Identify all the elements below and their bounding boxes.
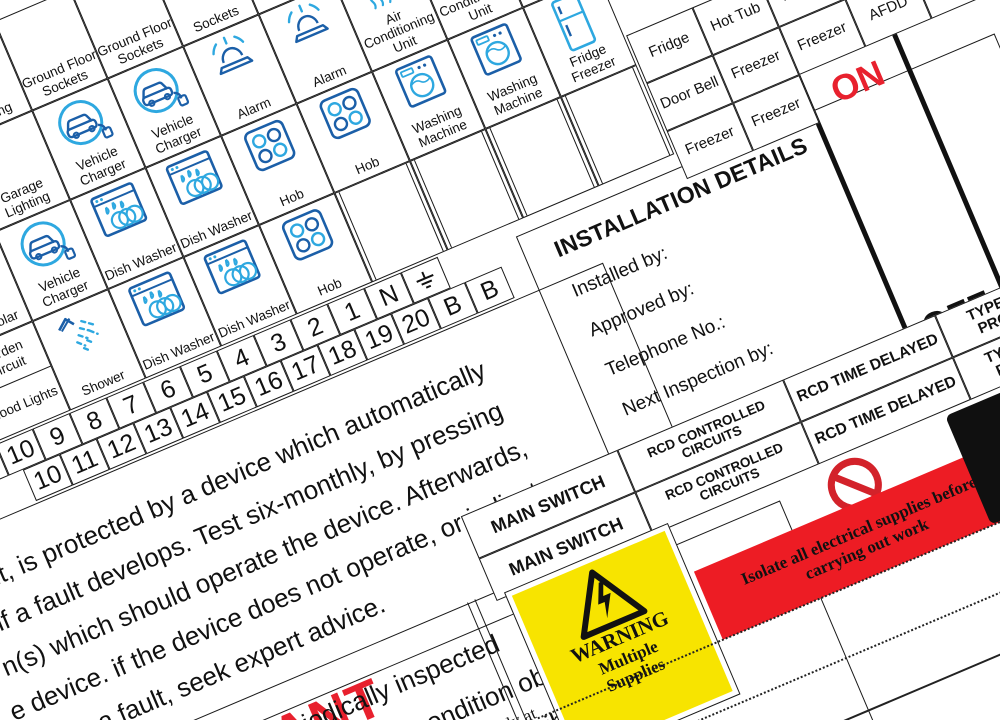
consumer-unit-label-sheet: it, is protected by a device which autom… (0, 0, 1000, 720)
label-sheet-photo: it, is protected by a device which autom… (0, 0, 1000, 720)
siren-icon (261, 0, 350, 55)
on-text: ON (824, 52, 890, 112)
